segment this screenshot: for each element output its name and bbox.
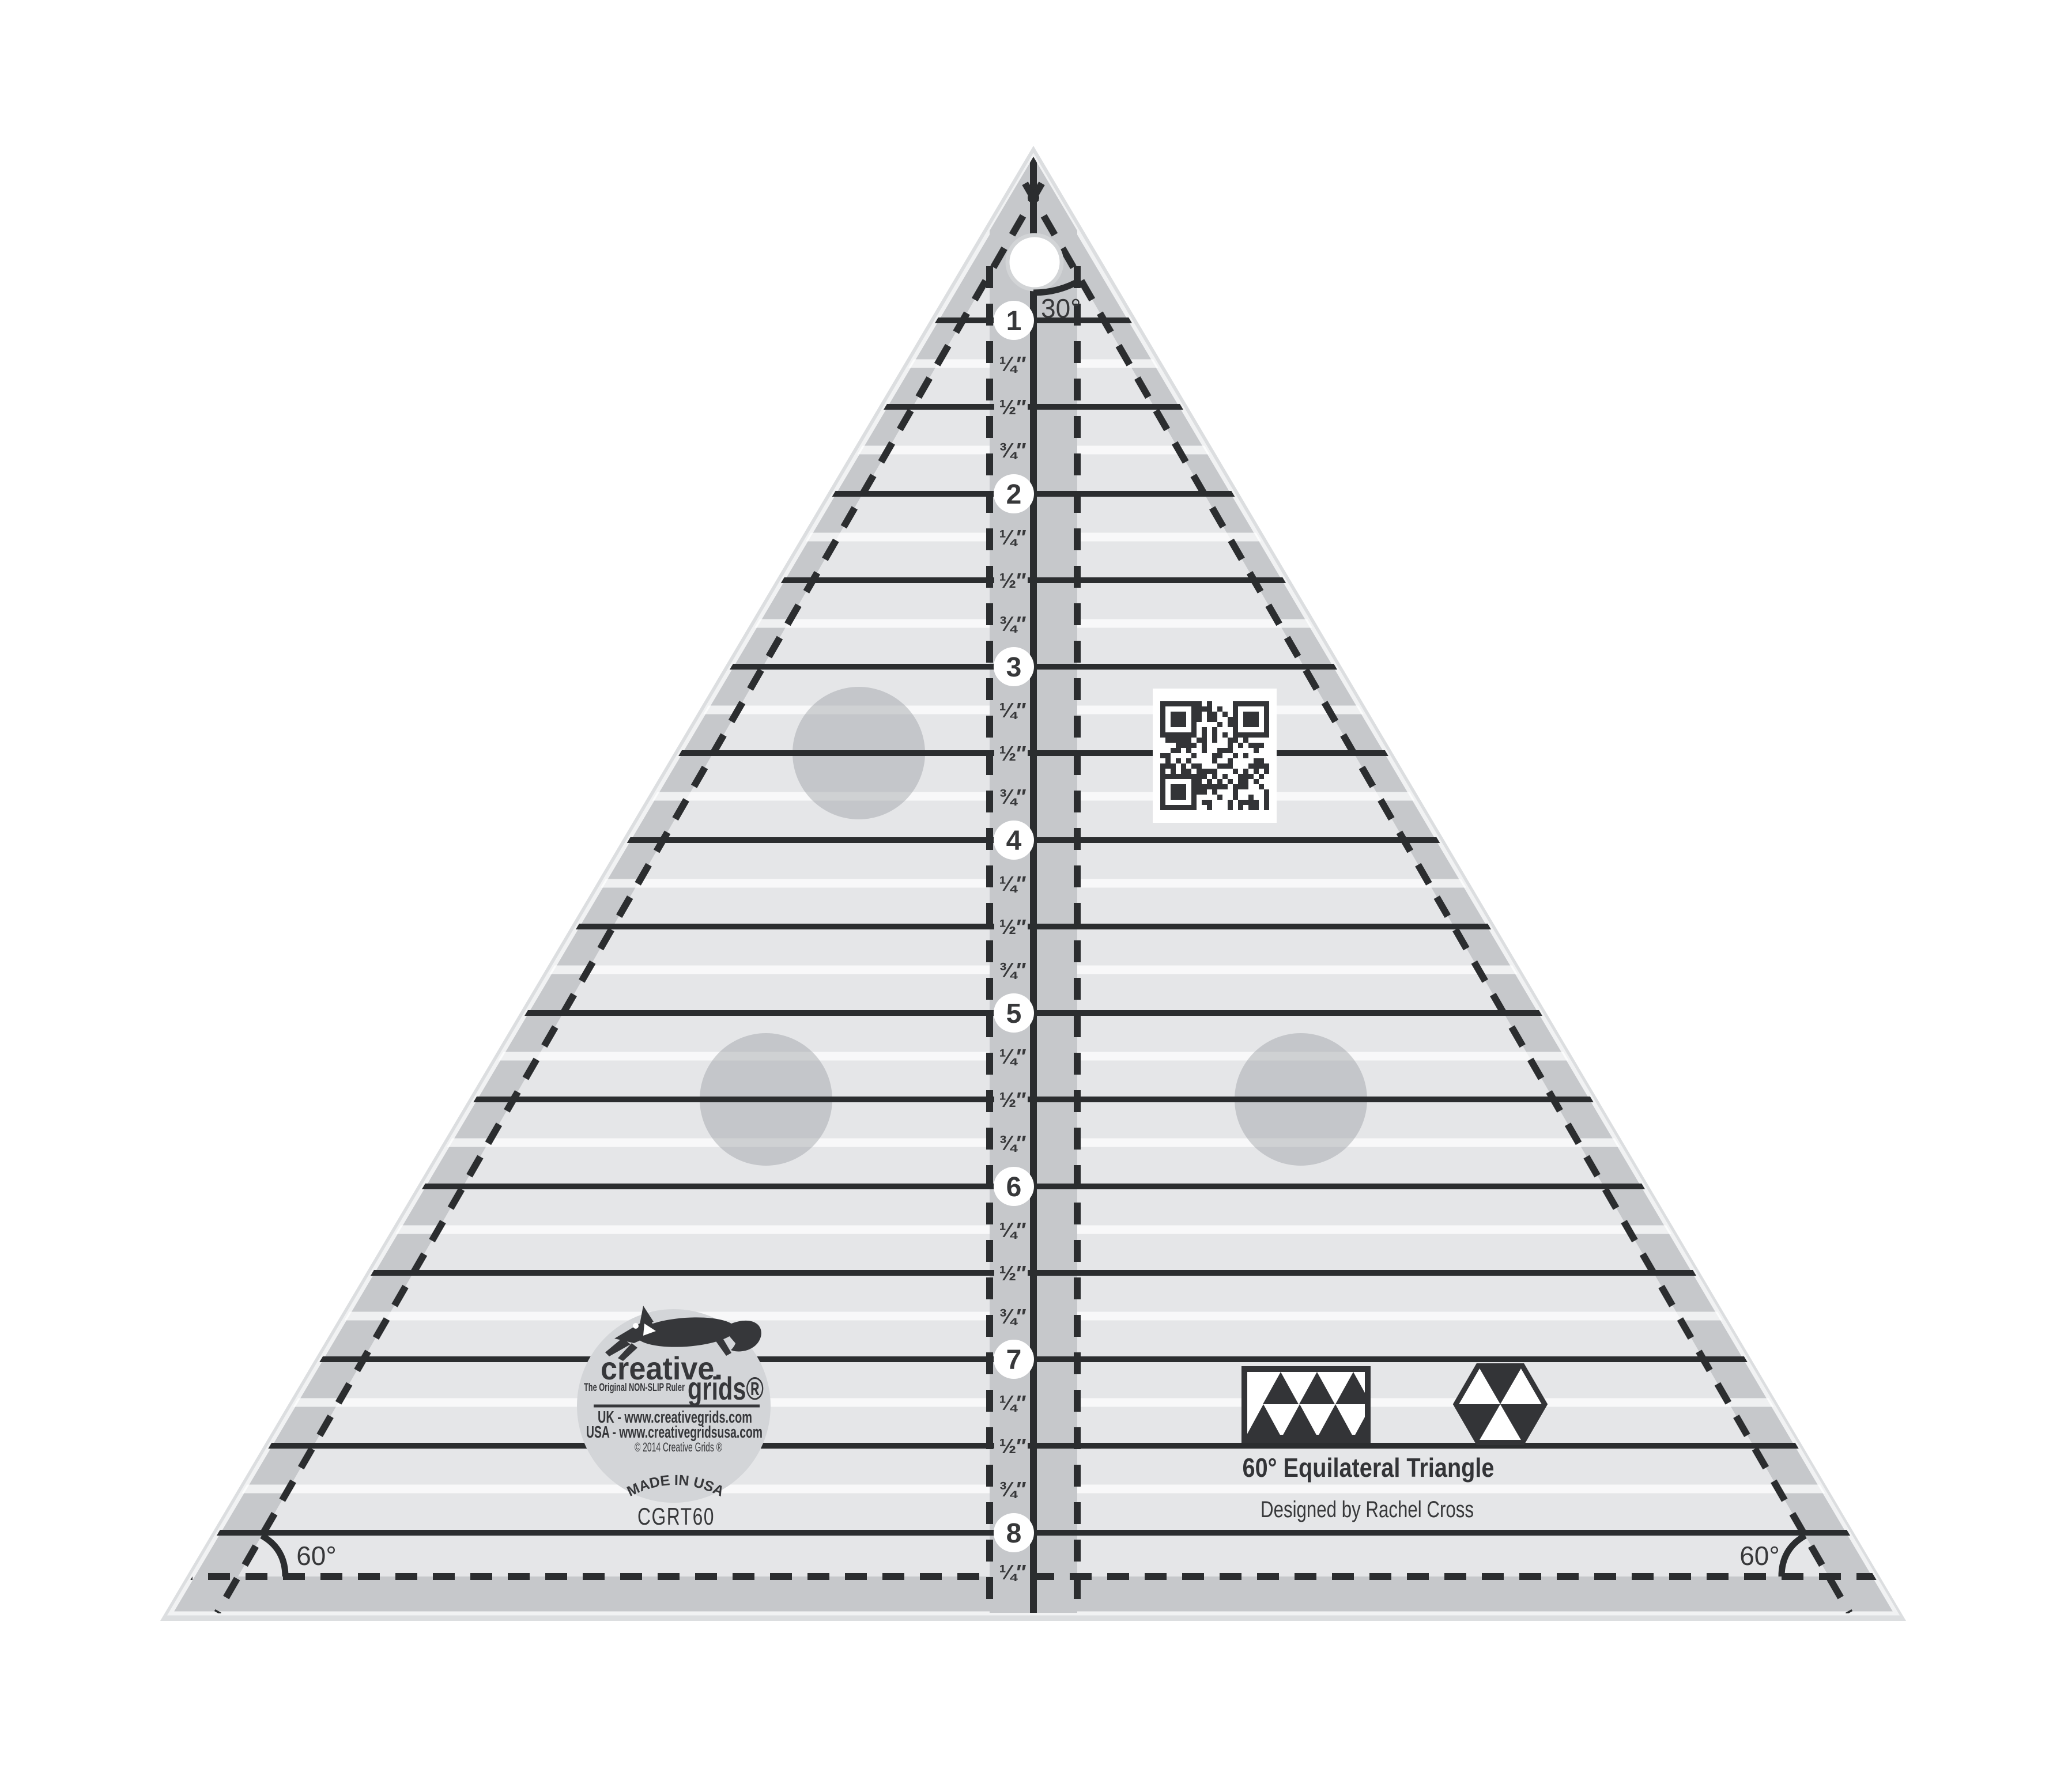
fraction-label: ¾″ (999, 612, 1026, 636)
qr-module (1228, 779, 1233, 784)
qr-module (1243, 738, 1248, 743)
qr-module (1160, 769, 1165, 774)
qr-module (1160, 701, 1165, 706)
qr-module (1202, 748, 1207, 753)
qr-module (1217, 748, 1222, 753)
qr-module (1259, 784, 1264, 789)
qr-module (1202, 732, 1207, 738)
qr-module (1160, 732, 1165, 738)
fraction-label: ½″ (999, 1088, 1026, 1112)
fraction-label: ¾″ (999, 438, 1026, 462)
qr-module (1186, 758, 1191, 763)
qr-module (1222, 748, 1228, 753)
qr-module (1171, 805, 1176, 810)
fraction-label: ¾″ (999, 958, 1026, 982)
qr-module (1160, 789, 1165, 795)
qr-module (1233, 712, 1238, 717)
qr-module (1238, 743, 1243, 748)
qr-module (1222, 774, 1228, 779)
qr-module (1191, 743, 1197, 748)
fraction-label: ¼″ (999, 698, 1026, 722)
qr-module (1176, 789, 1181, 795)
qr-module (1233, 738, 1238, 743)
qr-module (1181, 738, 1186, 743)
qr-module (1212, 717, 1217, 722)
qr-module (1259, 774, 1264, 779)
qr-module (1254, 779, 1259, 784)
qr-module (1243, 784, 1248, 789)
qr-module (1191, 706, 1197, 712)
qr-module (1160, 763, 1165, 769)
qr-module (1176, 701, 1181, 706)
qr-module (1176, 712, 1181, 717)
inch-number: 4 (1006, 826, 1022, 856)
qr-module (1191, 774, 1197, 779)
qr-module (1202, 743, 1207, 748)
logo-copyright: © 2014 Creative Grids ® (635, 1440, 722, 1454)
qr-module (1181, 763, 1186, 769)
qr-module (1160, 717, 1165, 722)
qr-module (1171, 763, 1176, 769)
qr-code (1153, 689, 1277, 823)
qr-module (1264, 805, 1269, 810)
qr-module (1202, 789, 1207, 795)
qr-module (1181, 732, 1186, 738)
qr-module (1228, 722, 1233, 727)
qr-module (1171, 722, 1176, 727)
fraction-label: ¼″ (999, 1218, 1026, 1242)
logo-tagline: The Original NON-SLIP Ruler (584, 1382, 685, 1394)
qr-module (1233, 784, 1238, 789)
qr-module (1197, 774, 1202, 779)
qr-module (1254, 722, 1259, 727)
qr-module (1171, 732, 1176, 738)
fraction-label: ¾″ (999, 1131, 1026, 1155)
qr-module (1233, 753, 1238, 758)
qr-module (1233, 795, 1238, 800)
qr-module (1165, 763, 1171, 769)
qr-module (1254, 701, 1259, 706)
bottom-right-angle-label: 60° (1739, 1541, 1780, 1571)
qr-module (1176, 805, 1181, 810)
qr-module (1254, 763, 1259, 769)
qr-module (1264, 795, 1269, 800)
qr-module (1248, 774, 1254, 779)
qr-module (1191, 712, 1197, 717)
qr-module (1181, 769, 1186, 774)
qr-module (1171, 795, 1176, 800)
qr-module (1191, 727, 1197, 732)
qr-module (1197, 779, 1202, 784)
qr-module (1222, 763, 1228, 769)
qr-module (1254, 758, 1259, 763)
fraction-label: ¼″ (999, 1045, 1026, 1068)
qr-module (1238, 732, 1243, 738)
qr-module (1207, 784, 1212, 789)
qr-module (1228, 763, 1233, 769)
qr-module (1207, 800, 1212, 805)
qr-module (1181, 743, 1186, 748)
qr-module (1259, 701, 1264, 706)
qr-module (1212, 732, 1217, 738)
qr-module (1191, 805, 1197, 810)
qr-module (1165, 774, 1171, 779)
qr-module (1160, 784, 1165, 789)
qr-module (1160, 800, 1165, 805)
qr-module (1160, 795, 1165, 800)
inch-number: 6 (1006, 1172, 1022, 1203)
qr-module (1165, 758, 1171, 763)
qr-module (1160, 722, 1165, 727)
qr-module (1197, 738, 1202, 743)
qr-module (1212, 758, 1217, 763)
qr-module (1160, 727, 1165, 732)
qr-module (1212, 774, 1217, 779)
qr-module (1238, 779, 1243, 784)
qr-module (1202, 784, 1207, 789)
qr-module (1217, 779, 1222, 784)
qr-module (1248, 701, 1254, 706)
qr-module (1176, 758, 1181, 763)
qr-module (1191, 701, 1197, 706)
qr-module (1264, 800, 1269, 805)
qr-module (1248, 743, 1254, 748)
qr-module (1254, 800, 1259, 805)
fraction-label: ¼″ (999, 1391, 1026, 1415)
qr-module (1207, 805, 1212, 810)
qr-module (1264, 722, 1269, 727)
qr-module (1207, 769, 1212, 774)
fraction-label: ½″ (999, 1261, 1026, 1285)
qr-module (1197, 701, 1202, 706)
qr-module (1238, 784, 1243, 789)
qr-module (1228, 800, 1233, 805)
qr-module (1191, 717, 1197, 722)
qr-module (1186, 769, 1191, 774)
qr-module (1197, 712, 1202, 717)
qr-module (1186, 701, 1191, 706)
qr-module (1233, 706, 1238, 712)
qr-module (1197, 717, 1202, 722)
hang-hole (1007, 235, 1062, 289)
qr-module (1197, 769, 1202, 774)
qr-module (1181, 795, 1186, 800)
qr-module (1243, 701, 1248, 706)
qr-module (1243, 779, 1248, 784)
qr-module (1248, 712, 1254, 717)
qr-module (1212, 738, 1217, 743)
qr-module (1243, 712, 1248, 717)
qr-module (1228, 743, 1233, 748)
qr-module (1238, 774, 1243, 779)
qr-module (1233, 722, 1238, 727)
qr-module (1243, 769, 1248, 774)
qr-module (1181, 701, 1186, 706)
qr-module (1264, 717, 1269, 722)
qr-module (1191, 763, 1197, 769)
qr-module (1160, 753, 1165, 758)
qr-module (1176, 743, 1181, 748)
qr-module (1181, 789, 1186, 795)
qr-module (1228, 758, 1233, 763)
qr-module (1259, 758, 1264, 763)
qr-module (1197, 789, 1202, 795)
qr-module (1160, 712, 1165, 717)
qr-module (1228, 717, 1233, 722)
triangle-ruler-image: 30° 60° 60° ¼″½″¾″1¼″½″¾″2¼″½″¾″3¼″½″¾″4… (0, 0, 2068, 1792)
qr-module (1207, 712, 1212, 717)
fraction-label: ½″ (999, 915, 1026, 939)
qr-module (1186, 732, 1191, 738)
qr-module (1207, 717, 1212, 722)
qr-module (1181, 722, 1186, 727)
qr-module (1176, 795, 1181, 800)
qr-module (1207, 779, 1212, 784)
qr-module (1165, 805, 1171, 810)
qr-module (1186, 743, 1191, 748)
qr-module (1181, 717, 1186, 722)
qr-module (1176, 748, 1181, 753)
qr-module (1243, 753, 1248, 758)
qr-module (1264, 769, 1269, 774)
fraction-label: ¾″ (999, 1305, 1026, 1328)
qr-module (1264, 712, 1269, 717)
qr-module (1254, 805, 1259, 810)
qr-module (1191, 732, 1197, 738)
qr-module (1181, 774, 1186, 779)
qr-module (1222, 784, 1228, 789)
qr-module (1254, 717, 1259, 722)
qr-module (1248, 722, 1254, 727)
qr-module (1243, 717, 1248, 722)
fraction-label: ¾″ (999, 1477, 1026, 1501)
qr-module (1228, 748, 1233, 753)
qr-module (1197, 706, 1202, 712)
qr-module (1171, 717, 1176, 722)
qr-module (1202, 727, 1207, 732)
qr-module (1254, 748, 1259, 753)
qr-module (1186, 805, 1191, 810)
fraction-label: ½″ (999, 742, 1026, 765)
qr-module (1248, 805, 1254, 810)
qr-module (1212, 727, 1217, 732)
qr-module (1259, 763, 1264, 769)
qr-module (1191, 784, 1197, 789)
qr-module (1160, 779, 1165, 784)
qr-module (1254, 732, 1259, 738)
qr-module (1212, 789, 1217, 795)
qr-module (1264, 701, 1269, 706)
fraction-label: ½″ (999, 395, 1026, 419)
qr-module (1171, 738, 1176, 743)
qr-module (1217, 722, 1222, 727)
qr-module (1197, 784, 1202, 789)
qr-module (1259, 743, 1264, 748)
qr-module (1248, 763, 1254, 769)
fraction-label: ¼″ (999, 1560, 1026, 1584)
dashed-crossing-dot (1028, 192, 1039, 203)
inch-number: 8 (1006, 1518, 1022, 1549)
qr-module (1212, 712, 1217, 717)
qr-module (1171, 769, 1176, 774)
qr-module (1202, 706, 1207, 712)
qr-module (1254, 769, 1259, 774)
qr-module (1171, 774, 1176, 779)
fraction-label: ¼″ (999, 872, 1026, 895)
qr-module (1233, 769, 1238, 774)
qr-module (1181, 784, 1186, 789)
qr-module (1186, 774, 1191, 779)
inch-number: 5 (1006, 999, 1022, 1029)
inch-number: 2 (1006, 479, 1022, 510)
qr-module (1217, 784, 1222, 789)
qr-module (1197, 763, 1202, 769)
qr-module (1233, 727, 1238, 732)
qr-module (1248, 717, 1254, 722)
qr-module (1191, 789, 1197, 795)
fraction-label: ½″ (999, 1434, 1026, 1458)
qr-module (1207, 706, 1212, 712)
fraction-label: ½″ (999, 569, 1026, 592)
qr-module (1238, 701, 1243, 706)
logo-brand-bottom: grids® (688, 1370, 764, 1407)
qr-module (1186, 738, 1191, 743)
qr-module (1222, 732, 1228, 738)
qr-module (1165, 732, 1171, 738)
qr-module (1191, 753, 1197, 758)
fraction-label: ¾″ (999, 785, 1026, 808)
qr-module (1243, 774, 1248, 779)
qr-module (1160, 774, 1165, 779)
qr-module (1264, 789, 1269, 795)
qr-module (1233, 789, 1238, 795)
qr-module (1254, 743, 1259, 748)
qr-module (1264, 727, 1269, 732)
qr-module (1176, 722, 1181, 727)
product-designer: Designed by Rachel Cross (1261, 1497, 1474, 1522)
inch-number: 1 (1006, 306, 1022, 337)
qr-module (1238, 805, 1243, 810)
qr-module (1233, 732, 1238, 738)
fraction-label: ¼″ (999, 352, 1026, 376)
qr-module (1228, 805, 1233, 810)
qr-module (1217, 763, 1222, 769)
qr-module (1254, 712, 1259, 717)
inch-number: 3 (1006, 652, 1022, 683)
qr-module (1248, 800, 1254, 805)
qr-module (1233, 717, 1238, 722)
qr-module (1248, 795, 1254, 800)
qr-module (1171, 789, 1176, 795)
qr-module (1181, 805, 1186, 810)
qr-module (1160, 805, 1165, 810)
qr-module (1165, 753, 1171, 758)
qr-module (1207, 701, 1212, 706)
qr-module (1165, 738, 1171, 743)
qr-module (1228, 738, 1233, 743)
qr-module (1264, 732, 1269, 738)
fraction-label: ¼″ (999, 525, 1026, 549)
qr-module (1191, 722, 1197, 727)
qr-module (1259, 732, 1264, 738)
qr-module (1243, 732, 1248, 738)
qr-module (1217, 795, 1222, 800)
qr-module (1212, 769, 1217, 774)
qr-module (1181, 712, 1186, 717)
qr-module (1176, 732, 1181, 738)
qr-module (1233, 701, 1238, 706)
logo-url-usa: USA - www.creativegridsusa.com (586, 1423, 763, 1442)
qr-module (1202, 774, 1207, 779)
qr-module (1191, 800, 1197, 805)
qr-module (1171, 712, 1176, 717)
bottom-left-angle-label: 60° (296, 1541, 337, 1571)
apex-angle-label: 30° (1041, 293, 1081, 323)
qr-module (1176, 717, 1181, 722)
qr-module (1217, 753, 1222, 758)
qr-module (1212, 784, 1217, 789)
qr-module (1176, 774, 1181, 779)
qr-module (1176, 738, 1181, 743)
qr-module (1243, 800, 1248, 805)
qr-module (1171, 701, 1176, 706)
qr-module (1212, 753, 1217, 758)
qr-module (1160, 706, 1165, 712)
qr-module (1165, 701, 1171, 706)
qr-module (1171, 784, 1176, 789)
qr-module (1264, 706, 1269, 712)
qr-module (1191, 795, 1197, 800)
product-title: 60° Equilateral Triangle (1243, 1453, 1495, 1483)
model-number: CGRT60 (637, 1503, 715, 1530)
qr-module (1202, 769, 1207, 774)
qr-module (1191, 779, 1197, 784)
qr-module (1264, 763, 1269, 769)
qr-module (1176, 784, 1181, 789)
qr-module (1202, 738, 1207, 743)
qr-module (1243, 722, 1248, 727)
hexagon-triangles-icon (1456, 1366, 1545, 1443)
qr-module (1222, 712, 1228, 717)
qr-module (1202, 800, 1207, 805)
qr-module (1217, 706, 1222, 712)
qr-module (1186, 748, 1191, 753)
ruler-face (86, 151, 1983, 1613)
qr-module (1248, 732, 1254, 738)
qr-module (1238, 800, 1243, 805)
inch-number: 7 (1006, 1345, 1022, 1375)
qr-module (1171, 748, 1176, 753)
